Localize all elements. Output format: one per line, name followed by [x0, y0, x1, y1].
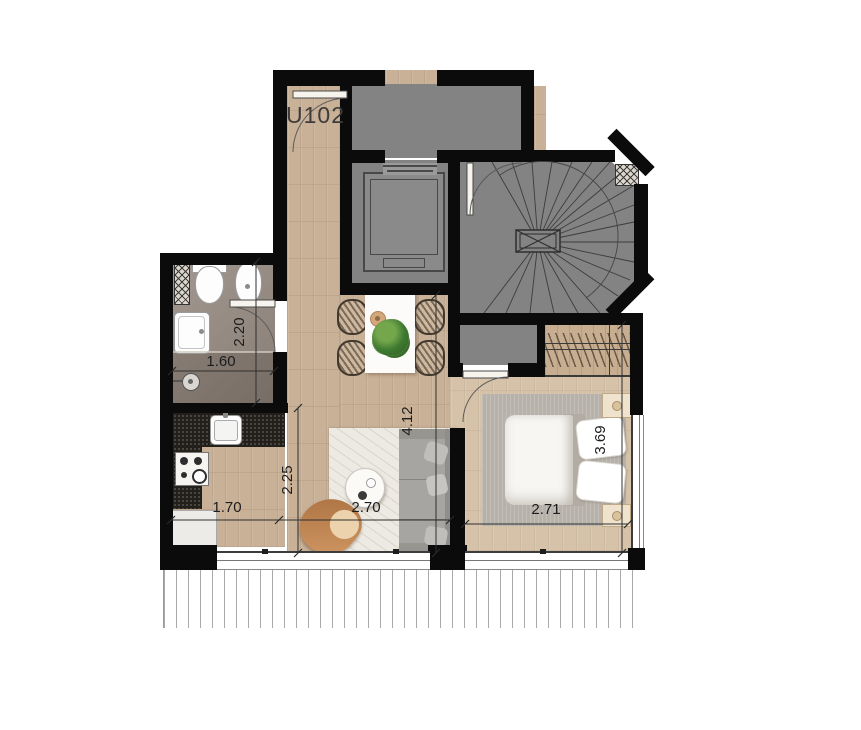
floor-plan: U102 2.20 1.60 2.25 4.12 1.70 2.70 2.71 … [0, 0, 861, 730]
unit-label: U102 [286, 102, 345, 129]
bathroom-door-leaf [230, 300, 275, 307]
doors [230, 91, 522, 422]
dimension-label-bathroom-width: 1.60 [201, 354, 241, 370]
stair-newel [516, 230, 560, 252]
landing-door-arc [470, 163, 522, 215]
dimension-label-living-width: 2.70 [346, 500, 386, 516]
bedroom-door-arc [463, 377, 508, 422]
window-mullions [262, 549, 546, 554]
bedroom-door-leaf [463, 371, 508, 378]
dimension-label-bathroom-height: 2.20 [232, 312, 248, 352]
elevator-door-icon [383, 163, 437, 175]
landing-door-leaf [467, 163, 473, 215]
annotation-layer [0, 0, 861, 730]
entrance-door-leaf [293, 91, 347, 98]
dimension-label-kitchen-width: 1.70 [207, 500, 247, 516]
dimension-label-bedroom-width: 2.71 [526, 502, 566, 518]
dimension-label-living-height: 4.12 [400, 401, 416, 441]
dimension-label-kitchen-depth: 2.25 [280, 460, 296, 500]
dimension-label-bedroom-height: 3.69 [593, 420, 609, 460]
